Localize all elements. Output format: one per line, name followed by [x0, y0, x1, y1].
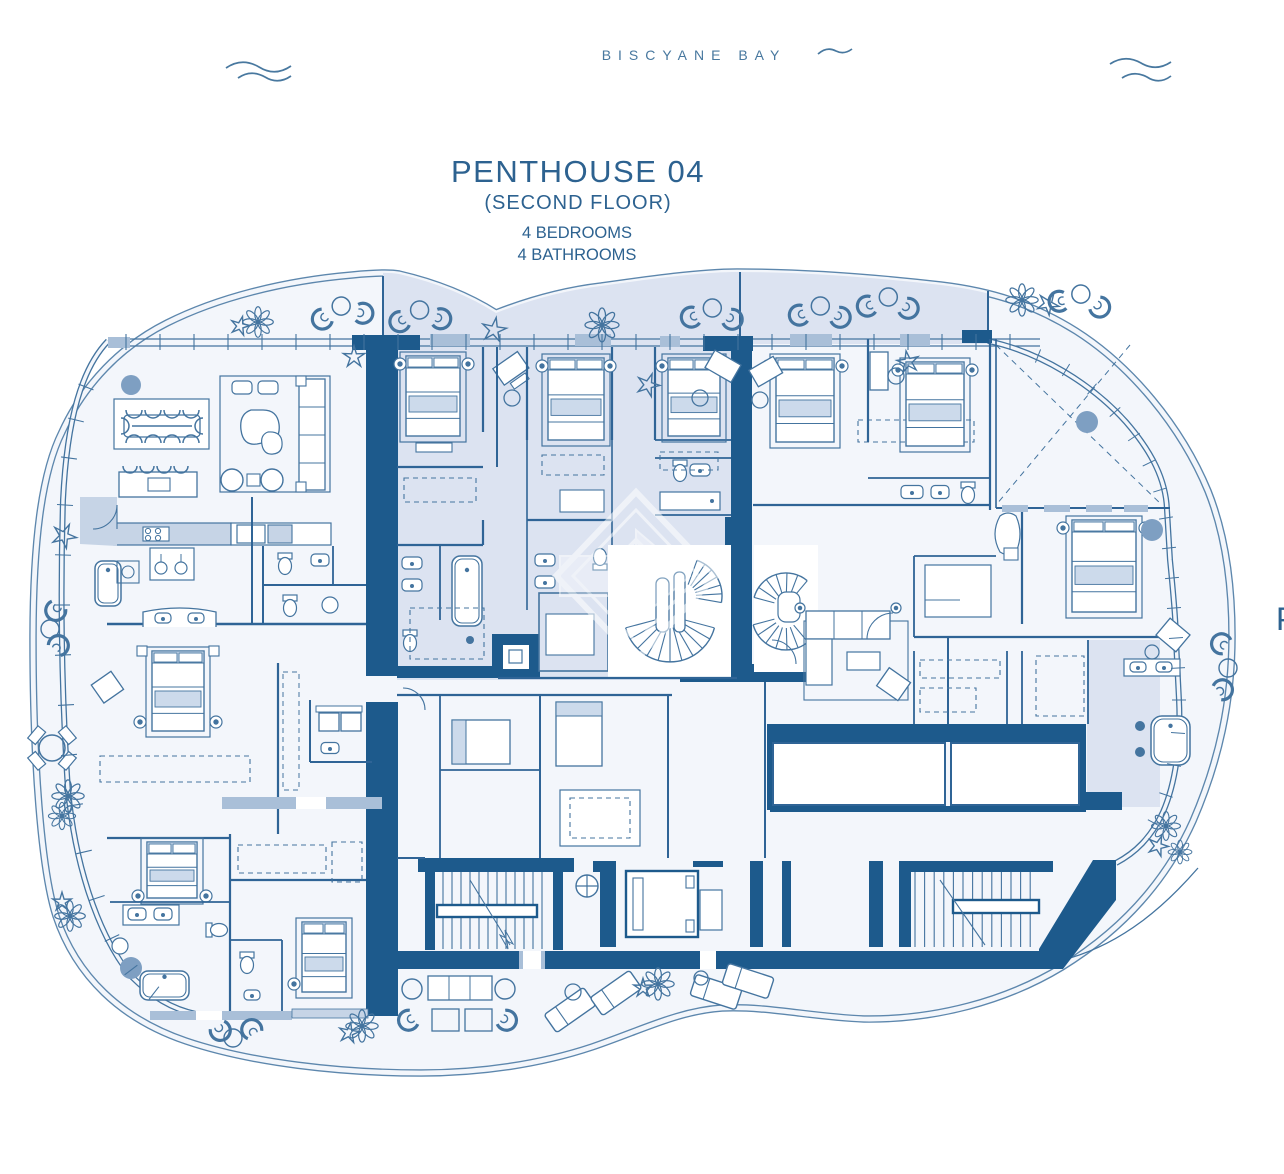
- svg-text:PENTHOUSE 04: PENTHOUSE 04: [451, 154, 705, 189]
- svg-text:(SECOND FLOOR): (SECOND FLOOR): [484, 192, 671, 214]
- svg-text:P: P: [1276, 601, 1284, 637]
- svg-text:4 BEDROOMS: 4 BEDROOMS: [522, 224, 632, 242]
- svg-text:BISCYANE BAY: BISCYANE BAY: [602, 47, 787, 63]
- svg-text:4 BATHROOMS: 4 BATHROOMS: [518, 246, 637, 264]
